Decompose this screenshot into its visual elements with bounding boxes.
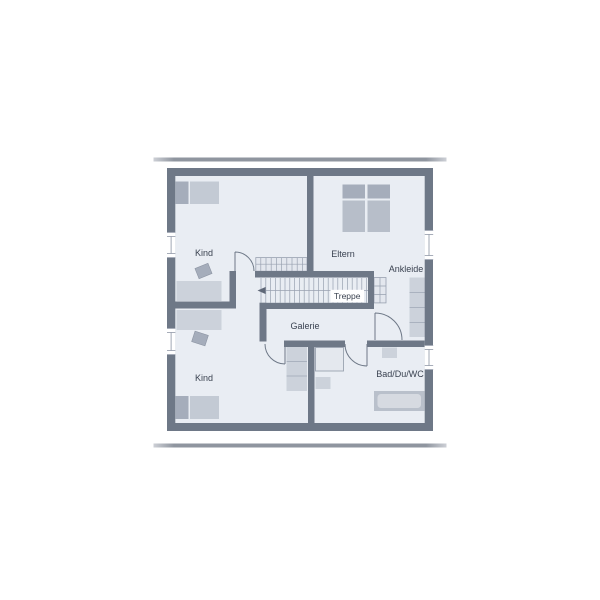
shower (316, 348, 344, 372)
top-divider-bar (154, 158, 447, 162)
cabinet-body (287, 347, 308, 391)
wall-stair-top (255, 271, 374, 278)
bed-pillow-left (343, 185, 366, 199)
bathtub (374, 391, 425, 411)
wall-stub-shower (315, 341, 346, 348)
outer-wall-top (167, 168, 433, 176)
floorplan-page: Kind Eltern Ankleide Treppe Galerie Kind… (0, 0, 600, 600)
bed-mattress (190, 182, 219, 205)
desk-kind-bottom (177, 310, 222, 330)
bed-mattress-left (343, 201, 366, 233)
bed-kind-top (176, 182, 220, 205)
label-kind-bottom: Kind (195, 373, 213, 383)
bed-pillow (176, 396, 189, 419)
bed-pillow-right (368, 185, 391, 199)
desk-kind-top (177, 281, 222, 301)
wall-stub-kind-door (230, 271, 237, 309)
label-treppe: Treppe (334, 291, 361, 301)
wall-bad-top (367, 341, 425, 348)
window-eltern (425, 230, 434, 260)
bed-pillow (176, 182, 189, 205)
bathtub-inner (378, 394, 422, 408)
bed-mattress-right (368, 201, 391, 233)
label-eltern: Eltern (331, 249, 355, 259)
window-kind-top (167, 232, 176, 258)
wall-center-vertical (308, 341, 315, 425)
bed-kind-bottom (176, 396, 220, 419)
bed-mattress (190, 396, 219, 419)
window-bad (425, 345, 434, 370)
wall-stub-alcove (284, 341, 308, 348)
wall-kind-eltern (307, 176, 314, 277)
label-kind-top: Kind (195, 248, 213, 258)
outer-wall-left (167, 168, 175, 431)
wall-stair-right (368, 271, 374, 309)
window-kind-bottom (167, 328, 176, 355)
label-ankleide: Ankleide (389, 264, 424, 274)
outer-wall-right (425, 168, 433, 431)
cabinet-alcove (287, 347, 308, 391)
wall-stair-bottom (260, 303, 375, 309)
label-galerie: Galerie (290, 321, 319, 331)
label-bad: Bad/Du/WC (376, 369, 424, 379)
wardrobe-ankleide (410, 278, 426, 338)
bottom-divider-bar (154, 444, 447, 448)
washbasin-wall (382, 348, 397, 359)
floorplan-svg: Kind Eltern Ankleide Treppe Galerie Kind… (0, 0, 600, 600)
wall-galerie-left (260, 303, 267, 342)
outer-wall-bottom (167, 423, 433, 431)
washbasin-left (316, 377, 331, 389)
wall-kind-divider (175, 302, 236, 309)
